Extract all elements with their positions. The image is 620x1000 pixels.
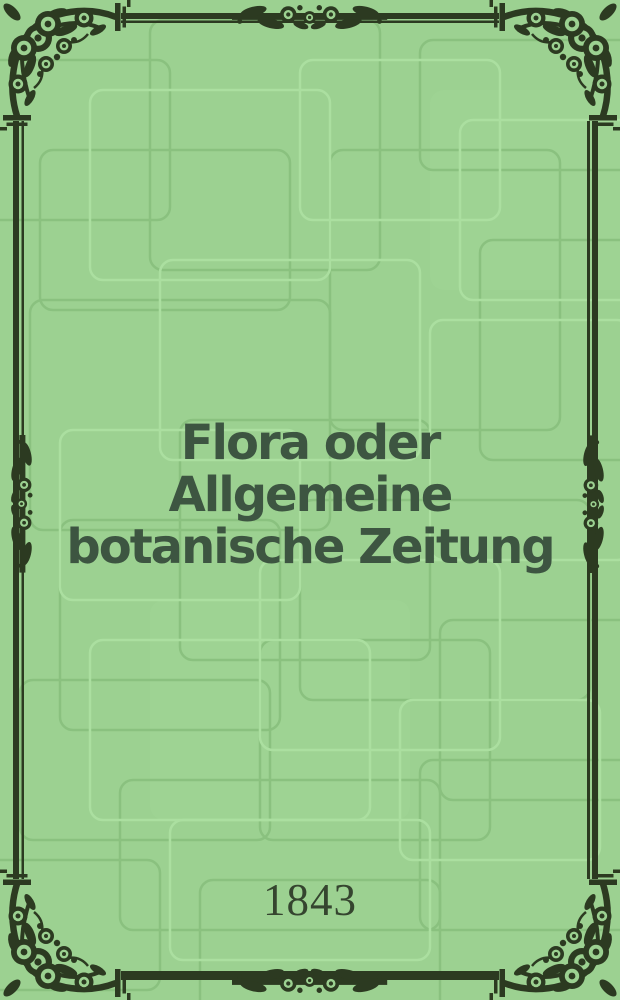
journal-title: Flora oder Allgemeine botanische Zeitung — [0, 417, 620, 573]
title-line-3: botanische Zeitung — [0, 521, 620, 573]
title-line-2: Allgemeine — [0, 469, 620, 521]
book-cover: Flora oder Allgemeine botanische Zeitung… — [0, 0, 620, 1000]
publication-year: 1843 — [0, 878, 620, 923]
title-line-1: Flora oder — [0, 417, 620, 469]
corner-ornament-top-right — [490, 0, 620, 131]
floral-divider-top — [232, 4, 387, 32]
floral-divider-bottom — [232, 967, 387, 995]
corner-ornament-top-left — [0, 0, 131, 131]
